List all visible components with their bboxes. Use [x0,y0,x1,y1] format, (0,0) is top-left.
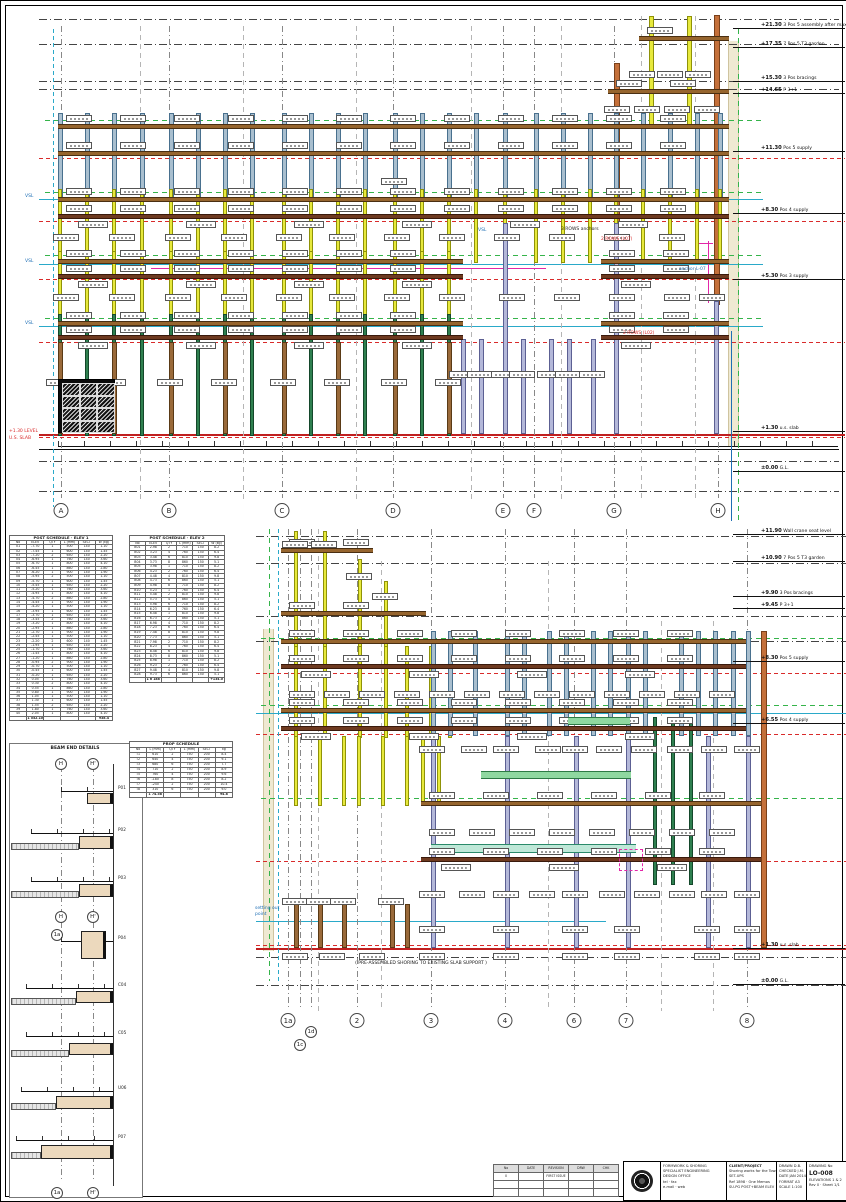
label-chip [535,746,561,753]
label-chip [645,792,671,799]
title-block-company: FORMWORK & SHORING SPECIALIST ENGINEERIN… [660,1162,726,1200]
label-chip [319,953,345,960]
label-chip [439,294,465,301]
label-chip [467,371,493,378]
detail-label: P03 [118,875,126,880]
label-chip [419,926,445,933]
label-chip [390,205,416,212]
grid-bubble-6: 6 [567,1013,582,1028]
label-chip [289,655,315,662]
detail-steel-beam [11,843,79,850]
elevation-marker-line [733,561,845,562]
label-chip [419,746,445,753]
label-chip [66,312,92,319]
annotation-note: VSL [25,194,33,199]
elevation-marker-line [733,213,845,214]
label-chip [343,699,369,706]
label-chip [228,265,254,272]
label-chip [709,829,735,836]
cribbing-cell [97,421,115,434]
detail-timber-beam [69,1043,113,1055]
label-chip [629,71,655,78]
label-chip [534,691,560,698]
label-chip [562,746,588,753]
label-chip [614,953,640,960]
label-chip [174,115,200,122]
annotation-note: VSL [25,259,33,264]
label-chip [390,312,416,319]
label-chip [336,188,362,195]
drawing-number: LO-008 [809,1169,844,1178]
label-chip [559,630,585,637]
label-chip [120,205,146,212]
label-chip [109,234,135,241]
grid-bubble-D: D [386,503,401,518]
label-chip [390,115,416,122]
label-chip [667,717,693,724]
post-gray [696,631,701,736]
label-chip [381,178,407,185]
elevation-line-grid [39,461,839,462]
drawing-note: ( PRE-ASSEMBLED SHORING TO EXISTING SLAB… [316,961,526,966]
label-chip [174,188,200,195]
label-chip [289,717,315,724]
elevation-line-grid [256,616,846,617]
detail-dimension-line [21,1087,113,1092]
post-schedule-elev1-table: POST SCHEDULE · ELEV 1NoELEVQTYL (mm)SEC… [9,535,113,721]
label-chip [596,746,622,753]
label-chip [311,541,337,548]
label-chip [606,188,632,195]
label-chip [330,898,356,905]
meta-line: DATE JAN 2014 [779,1174,804,1179]
label-chip [498,188,524,195]
label-chip [591,792,617,799]
gridline-vertical [53,29,54,507]
label-chip [289,699,315,706]
label-chip [120,265,146,272]
grid-bubble-A: A [54,503,69,518]
label-chip [552,188,578,195]
label-chip [329,294,355,301]
beam-dark [58,214,729,219]
elevation-line-red_dash [39,221,845,222]
label-chip [660,115,686,122]
gridline-vertical [731,331,732,521]
schedule-total-row: Σ 552.10938.4 [10,716,113,720]
elevation-marker-line [733,151,845,152]
grid-bubble-7: 7 [619,1013,634,1028]
label-chip [554,294,580,301]
elevation-marker-line [733,723,845,724]
elevation-marker-line [733,596,845,597]
post-brown [393,342,398,434]
label-chip [549,864,579,871]
label-chip [609,312,635,319]
label-chip [669,891,695,898]
detail-label: C04 [118,982,126,987]
post-lav [521,339,526,434]
label-chip [66,250,92,257]
post-brown [294,904,299,948]
cribbing-cell [80,421,98,434]
label-chip [390,188,416,195]
label-chip [228,312,254,319]
revision-table: NoDATEREVISIONDRWCHK0 FIRST ISSUE [493,1164,619,1197]
elevation-label: +1.30 u.s. slab [761,425,799,431]
label-chip [664,106,690,113]
label-chip [397,717,423,724]
annotation-note: 3 ROWS anchors [561,227,599,232]
label-chip [647,27,673,34]
title-block: FORMWORK & SHORING SPECIALIST ENGINEERIN… [623,1161,846,1201]
label-chip [709,691,735,698]
label-chip [499,691,525,698]
label-chip [282,326,308,333]
detail-timber-beam [76,991,113,1003]
label-chip [604,106,630,113]
post-lav [574,736,579,948]
label-chip [66,205,92,212]
elevation-label: +11.90 Wall crane seat level [761,528,831,534]
label-chip [165,234,191,241]
label-chip [469,829,495,836]
elevation-marker-line [733,279,845,280]
label-chip [397,630,423,637]
label-chip [509,371,535,378]
post-brown [318,904,323,948]
label-chip [221,234,247,241]
beam-dark [421,857,761,862]
post-lav [706,736,711,948]
label-chip [537,848,563,855]
elevation-line-dim [58,441,838,447]
detail-timber-beam [79,884,113,897]
beam-brown [281,548,373,553]
label-chip [228,250,254,257]
label-chip [734,953,760,960]
beam-brown [608,89,729,94]
label-chip [701,891,727,898]
grid-bubble-E: E [496,503,511,518]
label-chip [606,142,632,149]
label-chip [444,205,470,212]
label-chip [270,379,296,386]
elevation-marker-line [733,93,845,94]
label-chip [228,326,254,333]
gridline-vertical [93,766,94,1179]
label-chip [613,630,639,637]
beam-brown [281,611,426,616]
beam-brown [58,124,729,129]
label-chip [276,294,302,301]
label-chip [552,142,578,149]
elevation-line-red_dash [39,158,845,159]
grid-bubble-H: H [711,503,726,518]
label-chip [579,371,605,378]
details-edge-line [113,764,114,1186]
label-chip [634,891,660,898]
label-chip [294,342,324,349]
elevation-line-red_dash [39,279,845,280]
label-chip [685,71,711,78]
label-chip [562,953,588,960]
detail-label: P02 [118,827,126,832]
gridline-vertical [548,561,549,1011]
label-chip [517,733,547,740]
grid-bubble-3: 3 [424,1013,439,1028]
post-lav [591,339,596,434]
label-chip [346,573,372,580]
label-chip [494,234,520,241]
revision-header: REVISION [544,1165,569,1173]
post-yellow [342,736,346,806]
label-chip [451,655,477,662]
label-chip [734,926,760,933]
detail-label: P07 [118,1134,126,1139]
label-chip [211,379,237,386]
label-chip [409,733,439,740]
grid-bubble-H': H' [87,758,99,770]
label-chip [645,848,671,855]
elevation-label: +11.30 Pos 5 supply [761,145,812,151]
grid-bubble-B: B [162,503,177,518]
annotation-note: +1.30 LEVEL [9,429,38,434]
grid-bubble-4: 4 [498,1013,513,1028]
annotation-note: point [255,912,266,917]
company-line: e-mail · web [663,1185,724,1190]
label-chip [429,848,455,855]
label-chip [165,294,191,301]
label-chip [301,671,331,678]
label-chip [667,630,693,637]
beam-brown [421,801,761,806]
post-brown [336,342,341,434]
label-chip [282,541,308,548]
label-chip [174,326,200,333]
label-chip [78,281,108,288]
label-chip [451,699,477,706]
elevation-line-grid [256,563,846,564]
grid-bubble-F: F [527,503,542,518]
detail-dimension-line [31,877,113,882]
cribbing-block [58,379,115,433]
elevation-label: +8.30 Pos 5 supply [761,655,808,661]
label-chip [324,691,350,698]
label-chip [282,953,308,960]
elevation-marker-line [733,948,845,949]
label-chip [674,691,700,698]
annotation-note: U.S. SLAB [9,436,31,441]
label-chip [699,294,725,301]
label-chip [589,829,615,836]
prop-schedule: PROP SCHEDULENoL (mm)QTYL (mm)SECTkgT161… [129,741,233,798]
label-chip [419,891,445,898]
label-chip [498,205,524,212]
label-chip [509,829,535,836]
beam-dark [601,335,729,340]
label-chip [174,205,200,212]
post-lav [503,223,508,434]
elevation-marker-line [733,28,845,29]
post-yellow [294,736,298,806]
label-chip [694,953,720,960]
label-chip [609,250,635,257]
label-chip [667,746,693,753]
elevation-label: +21.30 3 Pos 5 assembly after max [761,22,846,28]
elevation-label: +8.30 Pos 4 supply [761,207,808,213]
post-green [309,314,313,436]
label-chip [228,188,254,195]
label-chip [157,379,183,386]
label-chip [549,829,575,836]
elevation-label: +1.30 u.s. slab [761,942,799,948]
label-chip [282,115,308,122]
detail-steel-beam [11,891,79,898]
label-chip [663,250,689,257]
cribbing-cell [97,396,115,409]
annotation-note: anchor L-07 [679,267,706,272]
title-block-number: DRAWING No LO-008 ELEVATIONS 1 & 2 Rev 0… [806,1162,846,1200]
label-chip [174,265,200,272]
label-chip [174,312,200,319]
prop-schedule-table: PROP SCHEDULENoL (mm)QTYL (mm)SECTkgT161… [129,741,233,798]
post-brown [282,342,287,434]
revision-header: CHK [594,1165,619,1173]
label-chip [591,848,617,855]
label-chip [343,602,369,609]
grid-bubble-C: C [275,503,290,518]
label-chip [343,630,369,637]
label-chip [174,142,200,149]
label-chip [336,265,362,272]
beam-brown [601,259,729,264]
label-chip [631,746,657,753]
post-lav [549,339,554,434]
label-chip [621,281,651,288]
label-chip [66,142,92,149]
label-chip [390,326,416,333]
label-chip [634,106,660,113]
detail-label: P04 [118,935,126,940]
label-chip [621,342,651,349]
label-chip [552,205,578,212]
label-chip [493,953,519,960]
label-chip [186,281,216,288]
label-chip [667,699,693,706]
gridline-vertical [661,621,662,1011]
label-chip [306,898,332,905]
beam-brown [58,151,729,156]
label-chip [493,891,519,898]
label-chip [429,792,455,799]
post-lav [505,736,510,948]
label-chip [120,142,146,149]
elevation-line-grid [39,491,839,492]
title-block-project: CLIENT/PROJECT Shoring works for the Tow… [726,1162,776,1200]
label-chip [639,691,665,698]
post-gray [713,631,718,736]
post-green [363,314,367,436]
label-chip [397,699,423,706]
post-gray [643,631,648,736]
beam-greenhl [568,717,630,725]
label-chip [78,221,108,228]
elevation-label: +10.90 7 Pos 5 T3 garden [761,555,825,561]
label-chip [384,234,410,241]
label-chip [221,294,247,301]
label-chip [625,671,655,678]
label-chip [667,655,693,662]
label-chip [282,265,308,272]
label-chip [659,234,685,241]
label-chip [493,746,519,753]
label-chip [444,142,470,149]
label-chip [444,115,470,122]
label-chip [384,294,410,301]
label-chip [329,234,355,241]
label-chip [559,655,585,662]
cribbing-cell [62,383,80,396]
label-chip [517,671,547,678]
elevation-line-black [39,449,839,450]
grid-bubble-H: H [55,758,67,770]
elevation-marker-line [733,47,845,48]
label-chip [599,891,625,898]
label-chip [537,792,563,799]
label-chip [53,294,79,301]
label-chip [109,294,135,301]
detail-timber-beam [79,836,113,849]
cribbing-cell [80,396,98,409]
beam-brown [58,197,729,202]
label-chip [498,115,524,122]
label-chip [510,221,540,228]
grid-bubble-H: H [55,911,67,923]
label-chip [663,312,689,319]
label-chip [120,312,146,319]
post-yellow [357,736,361,806]
label-chip [483,848,509,855]
elevation-label: ±0.00 G.L. [761,465,789,471]
post-schedule-elev1: POST SCHEDULE · ELEV 1NoELEVQTYL (mm)SEC… [9,535,113,721]
post-lav [567,339,572,434]
gridline-vertical [300,529,301,1009]
schedule-total-row: Σ 6 188+134.0 [130,677,225,682]
label-chip [282,142,308,149]
label-chip [614,926,640,933]
label-chip [429,829,455,836]
annotation-note: VSL [478,228,486,233]
label-chip [336,205,362,212]
annotation-note: setting out [255,906,279,911]
company-logo-area [624,1162,660,1200]
gridline-vertical [61,766,62,1179]
schedule-total-row: Σ 74.5894.8 [130,792,233,797]
post-yellow [381,736,385,806]
detail-steel-beam [11,1152,41,1159]
label-chip [390,265,416,272]
label-chip [483,792,509,799]
post-lav [461,339,466,434]
post-brown [390,904,395,948]
label-chip [616,80,642,87]
grid-bubble-1d: 1d [305,1026,317,1038]
revision-row [494,1181,619,1189]
label-chip [294,281,324,288]
post-lav [626,736,631,948]
title-block-meta: DRAWN D.B. CHECKED J.M. DATE JAN 2014 FO… [776,1162,806,1200]
